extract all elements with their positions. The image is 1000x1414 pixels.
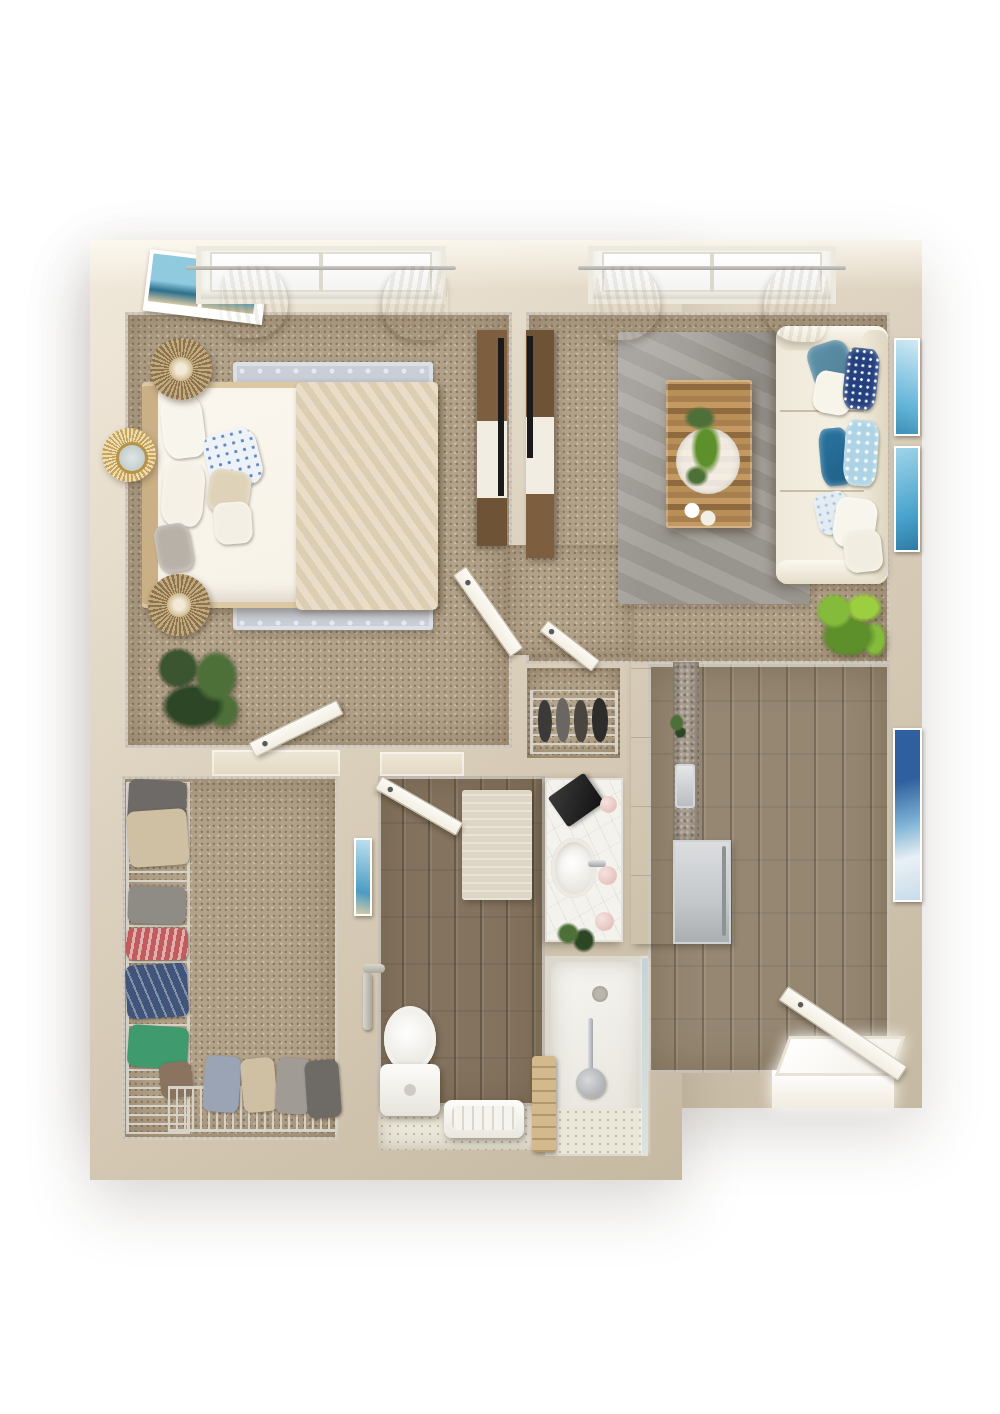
laundry-appliance-handle: [722, 846, 726, 936]
towel-bench-towel: [452, 1106, 516, 1130]
closet-doorway-threshold: [212, 750, 340, 776]
entry-wall-art: [893, 728, 922, 902]
hall-shoes-1: [538, 700, 552, 742]
bed-headboard: [142, 386, 158, 604]
kitchenette-tall-cabinet: [631, 662, 673, 944]
hall-shoes-4: [592, 698, 608, 742]
toilet-bowl: [384, 1006, 436, 1072]
bedroom-plant-pine: [148, 638, 248, 738]
coffee-table-cups: [682, 500, 722, 526]
clothes-navy: [125, 962, 190, 1019]
rattan-drum-table-top: [150, 338, 212, 400]
grab-bar-arm: [363, 964, 385, 973]
vanity-bottle-2: [598, 866, 617, 885]
feather-art-bottom: [894, 446, 920, 552]
bed-pillow-white-2: [159, 460, 206, 527]
vanity-sink: [551, 838, 597, 898]
shower-tile-floor: [556, 1108, 642, 1154]
bedroom-curtain-right: [382, 266, 448, 340]
hanging-denim: [202, 1055, 242, 1113]
kitchenette-plant: [666, 710, 690, 742]
shower-drain: [592, 986, 608, 1002]
clothes-gray: [127, 885, 186, 925]
kitchenette-sink: [675, 764, 695, 808]
seascape-art-left: [148, 253, 203, 307]
feather-art-top: [894, 338, 920, 436]
shower-glass-panel: [642, 958, 648, 1154]
bed-throw-blanket: [296, 382, 438, 610]
vanity-plant: [550, 916, 602, 960]
vanity-bottle-1: [600, 796, 617, 813]
bedroom-curtain-left: [222, 266, 288, 338]
living-curtain-right: [764, 266, 828, 342]
bathroom-doorway-threshold: [380, 752, 464, 776]
bed-pillow-white-1: [158, 394, 207, 461]
hanging-tan-jacket: [240, 1057, 279, 1114]
living-tv: [527, 336, 533, 458]
feather-art-top-print: [896, 340, 918, 434]
sofa-pillow-paisley: [842, 419, 881, 487]
bedroom-window-mullion: [319, 252, 323, 292]
living-curtain-left: [596, 266, 660, 340]
bathroom-wall-art: [354, 838, 372, 916]
bath-mat: [462, 790, 532, 900]
grab-bar: [363, 972, 372, 1030]
feather-art-bottom-print: [896, 448, 918, 550]
entry-art-print: [895, 730, 920, 900]
hall-shoes-2: [556, 698, 570, 742]
floorplan-render: [0, 0, 1000, 1414]
hall-shoes-3: [574, 700, 588, 742]
clothes-red: [126, 928, 188, 960]
hanging-charcoal-jacket: [304, 1059, 342, 1119]
living-window-mullion: [710, 252, 714, 292]
bed-pillow-small-white: [213, 501, 254, 546]
bedroom-tv: [498, 338, 504, 496]
sunburst-mirror-glass: [116, 442, 148, 474]
toilet-flush-button: [404, 1084, 416, 1096]
clothes-tan: [126, 808, 190, 868]
rattan-drum-table-bottom: [148, 574, 210, 636]
kitchenette-backsplash: [673, 662, 699, 840]
shower-towel-ladder: [532, 1056, 556, 1152]
bathroom-art-print: [356, 840, 370, 914]
sofa-seat-seam-2: [780, 490, 864, 492]
sofa-pillow-white-3: [842, 528, 884, 574]
fiddle-leaf-plant: [806, 584, 894, 668]
shower-head: [576, 1068, 606, 1098]
coffee-table-plant: [672, 398, 734, 498]
